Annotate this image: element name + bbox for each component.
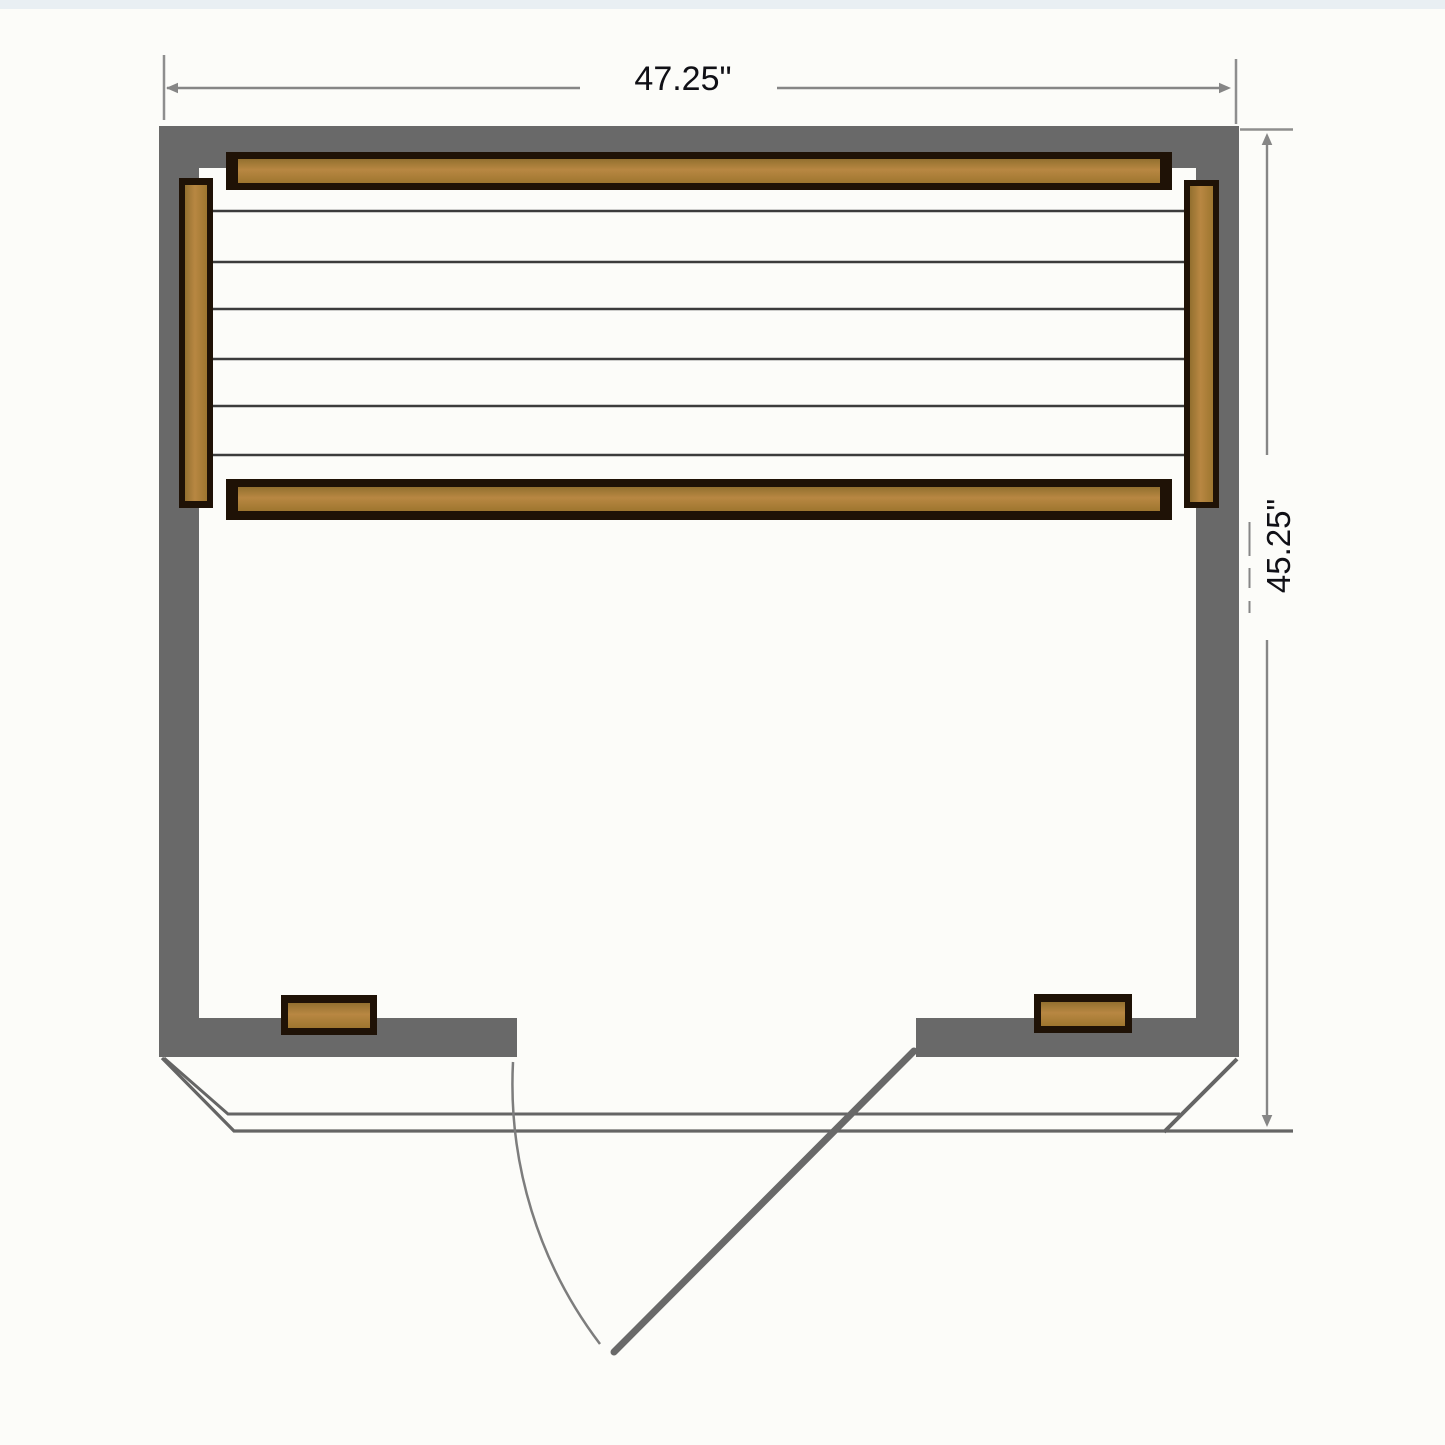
svg-text:45.25": 45.25" — [1260, 499, 1297, 593]
svg-text:47.25": 47.25" — [634, 60, 731, 98]
